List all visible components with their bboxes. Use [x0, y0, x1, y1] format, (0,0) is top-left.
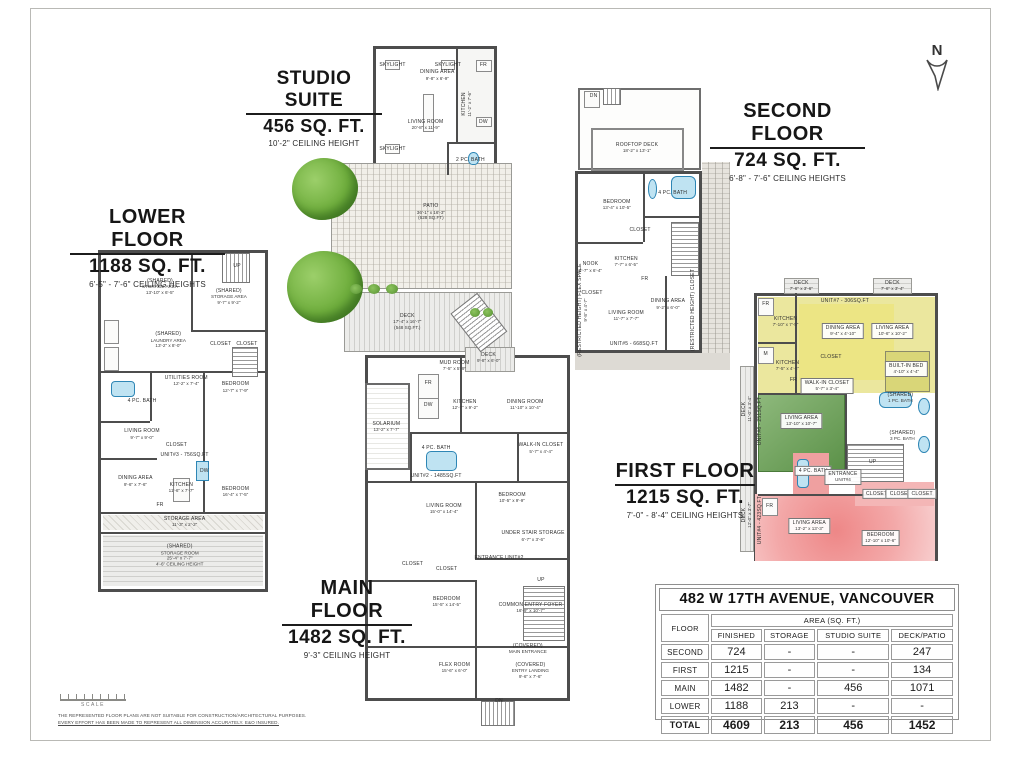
room-label: DINING ROOM11'-10" x 10'-4" — [507, 399, 544, 411]
disclaimer: THE REPRESENTED FLOOR PLANS ARE NOT SUIT… — [58, 712, 368, 727]
room-label: 4 PC. BATH — [128, 398, 157, 404]
room-label: BEDROOM10'-5" x 9'-9" — [498, 492, 525, 504]
staircase — [232, 347, 258, 377]
floor-ceiling: 6'-8" - 7'-6" CEILING HEIGHTS — [710, 174, 865, 183]
table-value-cell: - — [817, 662, 889, 678]
room-label: MUD ROOM7'-5" x 5'-9" — [440, 360, 470, 372]
room-label: KITCHEN11'-6" x 7'-7" — [169, 482, 194, 494]
room-label: UNIT#2 - 1485SQ.FT — [411, 473, 462, 479]
floor-area: 1482 SQ. FT. — [282, 627, 412, 649]
room-label: KITCHEN11'-2" x 7'-6" — [461, 92, 473, 117]
room-label: (SHARED)STORAGE ROOM25'-4" x 7'-7"4'-6" … — [156, 544, 203, 567]
room-label: UNIT#5 - 668SQ.FT — [610, 341, 658, 347]
floor-area: 1215 SQ. FT. — [615, 487, 755, 509]
table-value-cell: 213 — [764, 716, 816, 734]
room-label: 4 PC. BATH — [422, 445, 451, 451]
room-label: FLEX ROOM15'-6" x 6'-0" — [439, 662, 470, 674]
table-floor-cell: FIRST — [661, 662, 709, 678]
room-label: CLOSET — [166, 441, 187, 447]
room-label: 2 PC. BATH — [456, 157, 485, 163]
room-label: DW — [200, 468, 209, 474]
first-floor-plan: DECK7'-6" x 3'-6"DECK7'-6" x 3'-4"UNIT#7… — [740, 278, 938, 570]
main-floor-title-block: MAIN FLOOR 1482 SQ. FT. 9'-3" CEILING HE… — [282, 577, 412, 660]
floor-area: 724 SQ. FT. — [710, 150, 865, 172]
room-label: DW — [424, 401, 433, 407]
floor-area: 456 SQ. FT. — [246, 116, 382, 137]
table-floor-cell: MAIN — [661, 680, 709, 696]
table-value-cell: 456 — [817, 716, 889, 734]
table-value-cell: 1215 — [711, 662, 761, 678]
room-label: BEDROOM15'-5" x 14'-5" — [432, 596, 460, 608]
floor-ceiling: 7'-0" - 8'-4" CEILING HEIGHTS — [615, 511, 755, 520]
floor-title: LOWER FLOOR — [70, 206, 225, 255]
room-label: CLOSET — [236, 341, 257, 347]
room-label: FR — [480, 62, 487, 68]
lower-floor-plan: UP(SHARED)STORAGE AREA13'-10" x 6'-5"(SH… — [98, 250, 268, 592]
room-label: CLOSET — [402, 561, 423, 567]
room-label: FR — [425, 379, 432, 385]
room-label: FR — [790, 377, 797, 383]
scale-label: SCALE — [60, 702, 126, 708]
room-label: (RESTRICTED HEIGHT) CLOSET — [690, 269, 696, 351]
room-label: BEDROOM12'-7" x 7'-9" — [222, 381, 249, 393]
room-label: STORAGE AREA11'-3" x 2'-2" — [164, 516, 206, 528]
room-label: BEDROOM12'-10" x 10'-6" — [861, 530, 900, 546]
room-label: DECK9'-8" x 6'-0" — [477, 352, 500, 364]
table-value-cell: - — [764, 680, 816, 696]
second-floor-title-block: SECOND FLOOR 724 SQ. FT. 6'-8" - 7'-6" C… — [710, 100, 865, 183]
room-label: FR — [766, 503, 773, 509]
room-label: UP — [233, 263, 240, 269]
room-label: KITCHEN7'-5" x 4'-8" — [776, 360, 799, 372]
floor-title: SECOND FLOOR — [710, 100, 865, 149]
room-label: SOLARIUM13'-2" x 7'-7" — [373, 421, 401, 433]
room-label: (COVERED)ENTRY LANDING9'-6" x 7'-6" — [512, 662, 549, 680]
room-label: DN — [590, 93, 598, 99]
room-label: ENTRANCE UNIT#2 — [474, 555, 523, 561]
table-value-cell: - — [764, 662, 816, 678]
table-row: TOTAL46092134561452 — [661, 716, 953, 734]
room-label: LIVING ROOM9'-7" x 9'-0" — [124, 428, 160, 440]
room-label: LIVING ROOM20'-8" x 11'-9" — [408, 119, 444, 131]
table-value-cell: 134 — [891, 662, 953, 678]
room-label: FR — [762, 301, 769, 307]
room-label: (RESTRICTED HEIGHT) FLEX SPACE9'-8" x 4'… — [577, 263, 589, 356]
room-label: (SHARED)LAUNDRY AREA13'-2" x 8'-0" — [151, 332, 186, 350]
room-label: DECK11'-0" x 3'-4" — [741, 397, 753, 422]
north-arrow-icon — [924, 59, 950, 91]
sink-fixture — [648, 179, 657, 199]
room-label: SKYLIGHT — [379, 62, 405, 68]
room-label: (SHARED)STORAGE AREA9'-7" x 9'-2" — [211, 288, 247, 306]
room-label: DINING AREA9'-2" x 6'-0" — [651, 298, 685, 310]
room-label: (SHARED)1 PC. BATH — [887, 392, 913, 404]
room-label: WALK-IN CLOSET5'-7" x 4'-4" — [519, 442, 564, 454]
dryer-fixture — [104, 347, 119, 371]
studio-suite-plan: SKYLIGHTSKYLIGHTSKYLIGHTDINING AREA9'-8"… — [373, 46, 497, 178]
first-floor-title-block: FIRST FLOOR 1215 SQ. FT. 7'-0" - 8'-4" C… — [615, 460, 755, 520]
table-row: LOWER1188213-- — [661, 698, 953, 714]
table-value-cell: 4609 — [711, 716, 761, 734]
room-label: DINING AREA9'-6" x 7'-6" — [118, 475, 152, 487]
room-label: UNIT#7 - 306SQ.FT — [821, 298, 869, 304]
room-label: KITCHEN7'-7" x 6'-5" — [614, 256, 637, 268]
room-label: DECK7'-6" x 3'-6" — [790, 280, 813, 292]
room-label: UNIT#6 - 251SQ.FT — [757, 397, 763, 445]
room-label: CLOSET — [820, 354, 841, 360]
area-table-grid: FLOOR AREA (SQ. FT.) FINISHEDSTORAGESTUD… — [659, 612, 955, 736]
second-floor-plan: DNROOFTOP DECK18'-2" x 13'-1"BEDROOM13'-… — [575, 85, 730, 370]
table-value-cell: - — [764, 644, 816, 660]
room-label: CLOSET — [436, 566, 457, 572]
address-title: 482 W 17TH AVENUE, VANCOUVER — [659, 588, 955, 611]
room-label: ROOFTOP DECK18'-2" x 13'-1" — [616, 142, 658, 154]
bathtub-fixture — [426, 451, 457, 471]
table-value-cell: 724 — [711, 644, 761, 660]
scale-ruler-icon — [60, 694, 126, 701]
table-value-cell: - — [817, 644, 889, 660]
floor-header-cell: FLOOR — [661, 614, 709, 642]
table-floor-cell: LOWER — [661, 698, 709, 714]
room-label: DN — [495, 698, 503, 704]
area-header-cell: AREA (SQ. FT.) — [711, 614, 953, 627]
floor-area: 1188 SQ. FT. — [70, 256, 225, 278]
room-label: UTILITIES ROOM12'-2" x 7'-4" — [165, 375, 208, 387]
table-value-cell: 1452 — [891, 716, 953, 734]
roof-hatch — [702, 162, 730, 353]
room-label: UNDER STAIR STORAGE6'-7" x 3'-6" — [502, 530, 565, 542]
table-floor-cell: SECOND — [661, 644, 709, 660]
table-column-header: FINISHED — [711, 629, 761, 642]
floor-ceiling: 10'-2" CEILING HEIGHT — [246, 139, 382, 148]
room-label: LIVING AREA10'-6" x 10'-2" — [872, 323, 913, 339]
room-label: DINING AREA9'-8" x 6'-9" — [420, 69, 454, 81]
table-floor-cell: TOTAL — [661, 716, 709, 734]
entry-steps — [481, 701, 515, 726]
table-row: FIRST1215--134 — [661, 662, 953, 678]
table-column-header: STORAGE — [764, 629, 816, 642]
fridge-fixture — [418, 374, 439, 399]
planter-shrub — [350, 284, 362, 294]
room-label: BUILT-IN BED4'-10" x 4'-4" — [885, 361, 927, 377]
room-label: LIVING ROOM15'-0" x 14'-4" — [426, 503, 462, 515]
table-row: SECOND724--247 — [661, 644, 953, 660]
studio-suite-title-block: STUDIO SUITE 456 SQ. FT. 10'-2" CEILING … — [246, 68, 382, 148]
room-label: BEDROOM16'-4" x 7'-5" — [222, 486, 249, 498]
table-column-header: DECK/PATIO — [891, 629, 953, 642]
room-label: (COVERED)MAIN ENTRANCE — [509, 643, 547, 655]
room-label: CLOSET — [210, 341, 231, 347]
room-label: UNIT#3 - 756SQ.FT — [161, 451, 209, 457]
floor-ceiling: 6'-5" - 7'-6" CEILING HEIGHTS — [70, 280, 225, 289]
table-value-cell: 1482 — [711, 680, 761, 696]
scale-bar: SCALE — [60, 694, 126, 708]
table-value-cell: 456 — [817, 680, 889, 696]
room-label: KITCHEN12'-7" x 9'-2" — [452, 399, 478, 411]
floor-title: FIRST FLOOR — [615, 460, 755, 486]
room-label: PATIO36'-1" x 16'-3"(628 SQ.FT) — [417, 204, 445, 222]
table-value-cell: 247 — [891, 644, 953, 660]
disclaimer-line2: EVERY EFFORT HAS BEEN MADE TO REPRESENT … — [58, 719, 368, 726]
lower-floor-title-block: LOWER FLOOR 1188 SQ. FT. 6'-5" - 7'-6" C… — [70, 206, 225, 289]
room-label: DW — [479, 119, 488, 125]
room-label: DECK17'-4" x 16'-7"(548 SQ.FT.) — [393, 313, 421, 331]
table-value-cell: - — [891, 698, 953, 714]
room-label: BEDROOM13'-4" x 10'-5" — [603, 199, 631, 211]
room-label: KITCHEN7'-10" x 7'-5" — [773, 316, 799, 328]
room-label: COMMON ENTRY FOYER16'-9" x 10'-7" — [499, 602, 563, 614]
room-label: UP — [869, 459, 876, 465]
staircase — [671, 222, 699, 276]
room-label: 4 PC. BATH — [658, 190, 687, 196]
floor-ceiling: 9'-3" CEILING HEIGHT — [282, 651, 412, 660]
table-row: MAIN1482-4561071 — [661, 680, 953, 696]
room-label: DECK7'-6" x 3'-4" — [881, 280, 904, 292]
room-label: CLOSET — [908, 489, 937, 499]
table-value-cell: 1071 — [891, 680, 953, 696]
room-label: LIVING AREA13'-2" x 13'-3" — [789, 518, 830, 534]
room-label: (SHARED)3 PC. BATH — [889, 430, 915, 442]
roof-stairs — [603, 88, 622, 105]
disclaimer-line1: THE REPRESENTED FLOOR PLANS ARE NOT SUIT… — [58, 712, 368, 719]
washer-fixture — [104, 320, 119, 344]
room-label: UNIT#4 - 423SQ.FT — [757, 496, 763, 544]
room-label: M — [764, 351, 768, 357]
area-summary-table: 482 W 17TH AVENUE, VANCOUVER FLOOR AREA … — [655, 584, 959, 720]
room-label: FR — [641, 276, 648, 282]
table-value-cell: 213 — [764, 698, 816, 714]
north-arrow: N — [918, 42, 956, 91]
planter-shrub — [368, 284, 380, 294]
floor-title: MAIN FLOOR — [282, 577, 412, 626]
room-label: WALK-IN CLOSET5'-7" x 3'-4" — [801, 378, 854, 394]
table-column-header: STUDIO SUITE — [817, 629, 889, 642]
bathtub-fixture — [111, 381, 136, 398]
room-label: ENTRANCEUNIT#4 — [824, 469, 861, 485]
room-label: LIVING AREA13'-10" x 10'-7" — [781, 413, 822, 429]
room-label: SKYLIGHT — [379, 145, 405, 151]
room-label: CLOSET — [629, 227, 650, 233]
room-label: LIVING ROOM11'-7" x 7'-7" — [608, 310, 644, 322]
north-label: N — [918, 42, 956, 59]
room-label: UP — [537, 577, 544, 583]
room-label: FR — [156, 502, 163, 508]
room-label: SKYLIGHT — [435, 62, 461, 68]
room-label: DINING AREA9'-4" x 4'-10" — [822, 323, 864, 339]
table-value-cell: - — [817, 698, 889, 714]
toilet-fixture — [918, 436, 930, 454]
table-value-cell: 1188 — [711, 698, 761, 714]
floor-title: STUDIO SUITE — [246, 68, 382, 115]
